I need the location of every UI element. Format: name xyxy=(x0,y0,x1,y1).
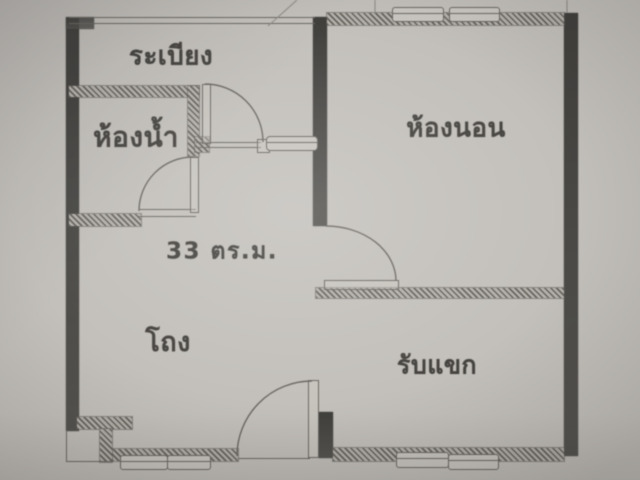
bathroom-door-arc xyxy=(139,157,193,211)
entry-door-arc xyxy=(237,381,312,456)
room-label-balcony: ระเบียง xyxy=(129,44,213,70)
floorplan-photo: ระเบียง ห้องน้ำ ห้องนอน 33 ตร.ม. โถง รับ… xyxy=(0,0,640,480)
room-label-hall: โถง xyxy=(145,329,191,356)
photo-crease-line xyxy=(268,0,297,26)
balcony-door-arc xyxy=(205,84,263,142)
room-label-bathroom: ห้องน้ำ xyxy=(93,124,179,152)
room-label-living: รับแขก xyxy=(397,352,477,377)
area-label: 33 ตร.ม. xyxy=(166,240,278,263)
floorplan-drawing: ระเบียง ห้องน้ำ ห้องนอน 33 ตร.ม. โถง รับ… xyxy=(0,0,640,480)
room-label-bedroom: ห้องนอน xyxy=(406,116,506,142)
door-arcs-overlay xyxy=(0,0,640,480)
bedroom-door-arc xyxy=(326,226,396,281)
